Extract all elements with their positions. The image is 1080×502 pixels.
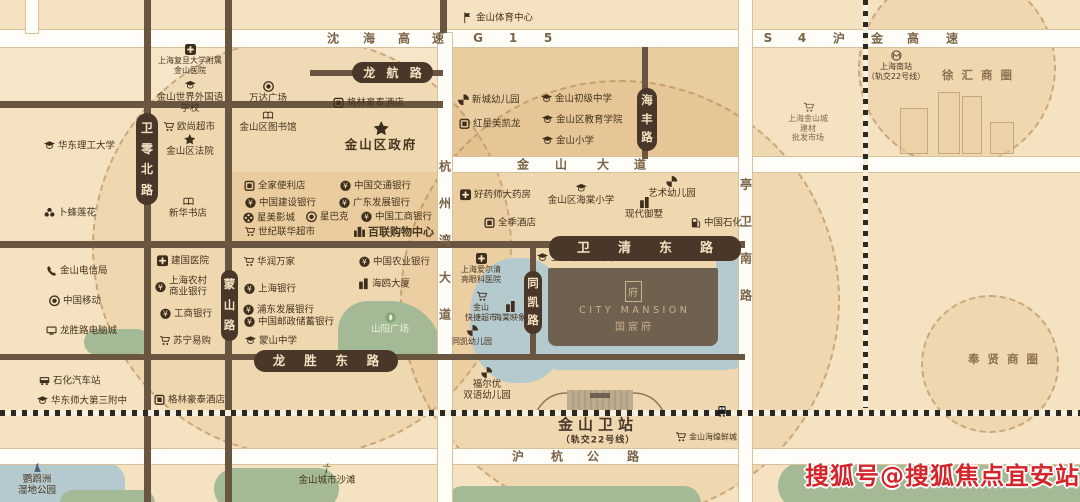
road-name-char: G xyxy=(473,31,483,45)
shop-icon xyxy=(484,217,495,228)
poi-label: 鹦鹉洲 xyxy=(18,474,56,485)
cross-icon xyxy=(185,44,196,55)
road-name-char: 沪 xyxy=(833,30,845,47)
poi-shanghai-south-station: 上海南站（轨交22号线） xyxy=(867,50,925,81)
road-pill-卫清东路: 卫清东路 xyxy=(549,236,741,261)
poi-china-mobile: 中国移动 xyxy=(49,295,101,306)
book-icon xyxy=(262,110,273,121)
towers-icon xyxy=(354,227,365,238)
poi-label: 金山区海棠小学 xyxy=(548,195,615,206)
poi-label: 华东理工大学 xyxy=(58,140,115,151)
skyline-building-sketch xyxy=(938,92,960,154)
cart-icon xyxy=(476,291,487,302)
project-emblem-icon: 府 xyxy=(625,281,642,302)
poi-art-kindergarten: 艺术幼儿园 xyxy=(648,176,696,199)
poi-label: （轨交22号线） xyxy=(867,72,925,82)
poi-label: 百联购物中心 xyxy=(368,225,434,238)
poi-label: 红星美凯龙 xyxy=(473,118,521,129)
cart-icon xyxy=(243,256,254,267)
bank-icon: ¥ xyxy=(339,197,350,208)
svg-text:¥: ¥ xyxy=(163,310,168,319)
school-icon xyxy=(542,114,553,125)
road-name-char: 道 xyxy=(439,306,451,323)
station-name: 金山卫站 xyxy=(558,414,638,435)
poi-label: 湿地公园 xyxy=(18,485,56,496)
svg-text:¥: ¥ xyxy=(342,199,347,208)
poi-label: 新华书店 xyxy=(169,208,207,219)
bank-icon: ¥ xyxy=(160,308,171,319)
road-name-char: 大 xyxy=(439,269,451,286)
poi-jinshan-junior-middle-school: 金山初级中学 xyxy=(541,93,612,104)
film-icon xyxy=(243,212,254,223)
poi-tongkai-kindergarten: 同凯幼儿园 xyxy=(452,325,492,347)
poi-label: 中国交通银行 xyxy=(354,180,411,191)
poi-label: 同凯幼儿园 xyxy=(452,337,492,347)
poi-lotus-supermarket: 卜蜂莲花 xyxy=(44,207,96,218)
poi-parrot-wetland-park: 鹦鹉洲湿地公园 xyxy=(18,462,56,497)
poi-jinshan-telecom: 金山电信局 xyxy=(46,265,108,276)
road-name-char: 道 xyxy=(634,156,646,173)
poi-longsheng-computer-city: 龙胜路电脑城 xyxy=(46,325,117,336)
poi-label: 卜蜂莲花 xyxy=(58,207,96,218)
road-pill-海丰路: 海丰路 xyxy=(637,88,657,151)
poi-label: 蒙山中学 xyxy=(259,335,297,346)
pc-icon xyxy=(46,325,57,336)
road-name-char: 南 xyxy=(740,250,752,267)
poi-label: 星巴克 xyxy=(320,211,349,222)
bus-icon xyxy=(39,375,50,386)
cart-icon xyxy=(244,226,255,237)
road-name-char: 公 xyxy=(587,448,599,465)
poi-label: 金山城市沙滩 xyxy=(298,475,355,486)
poi-label: 福尔优 xyxy=(463,379,511,390)
poi-label: 金山区图书馆 xyxy=(239,122,296,133)
poi-stellar-cinema: 星美影城 xyxy=(243,212,295,223)
poi-label: 华润万家 xyxy=(257,256,295,267)
poi-jinshan-government: 金山区政府 xyxy=(345,121,418,152)
poi-spd-bank: ¥浦东发展银行 xyxy=(243,304,314,315)
flower-icon xyxy=(44,207,55,218)
poi-label: 海鸥大厦 xyxy=(372,278,410,289)
poi-label: 金山区教育学院 xyxy=(556,114,623,125)
poi-label: 建国医院 xyxy=(171,255,209,266)
poi-haoyaoshi-pharmacy: 好药师大药房 xyxy=(460,189,531,200)
school-icon xyxy=(537,252,548,263)
road-pill-同凯路: 同凯路 xyxy=(524,271,542,334)
flag-icon xyxy=(462,12,473,23)
poi-label: 上海农村 xyxy=(169,276,207,287)
poi-label: 全季酒店 xyxy=(498,217,536,228)
poi-label: 中国建设银行 xyxy=(259,197,316,208)
poi-ccb-bank: ¥中国建设银行 xyxy=(245,197,316,208)
school-icon xyxy=(542,135,553,146)
poi-label: 华东师大第三附中 xyxy=(51,395,127,406)
bank-icon: ¥ xyxy=(359,256,370,267)
poi-sinopec: 中国石化 xyxy=(690,217,742,228)
poi-label: 金山小学 xyxy=(556,135,594,146)
star-icon xyxy=(373,121,388,136)
shop-icon xyxy=(244,180,255,191)
road-pill-蒙山路: 蒙山路 xyxy=(221,270,238,341)
poi-label: 金山电信局 xyxy=(60,265,108,276)
poi-label: 金山世界外国语 xyxy=(157,92,224,103)
skyline-building-sketch xyxy=(900,108,928,154)
school-icon xyxy=(37,395,48,406)
poi-lianhua-supermarket: 世纪联华超市 xyxy=(244,226,315,237)
poi-label: 全家便利店 xyxy=(258,180,306,191)
project-name-cn: 国宸府 xyxy=(612,318,654,333)
poi-wanda-plaza: 万达广场 xyxy=(249,81,287,104)
poi-bank-of-shanghai: ¥上海银行 xyxy=(244,283,296,294)
railway xyxy=(0,410,1080,416)
phone-icon xyxy=(46,265,57,276)
shop-icon xyxy=(333,97,344,108)
road-name-char: 大 xyxy=(597,156,609,173)
svg-text:¥: ¥ xyxy=(246,306,251,315)
school-icon xyxy=(44,140,55,151)
road-name-char: 金 xyxy=(871,30,883,47)
poi-jinshan-court: 金山区法院 xyxy=(166,134,214,157)
coffee-icon xyxy=(262,81,273,92)
svg-text:¥: ¥ xyxy=(247,285,252,294)
shop-icon xyxy=(154,394,165,405)
poi-label: 批发市场 xyxy=(788,133,828,143)
poi-fudan-jinshan-hospital: 上海复旦大学附属金山医院 xyxy=(158,44,222,75)
poi-label: 中国石化 xyxy=(704,217,742,228)
leaf-icon xyxy=(384,312,395,323)
poi-jinshan-city-beach: 金山城市沙滩 xyxy=(298,463,355,486)
building-icon xyxy=(358,278,369,289)
poi-label: 金山 xyxy=(465,303,497,313)
road-name-char: 金 xyxy=(517,156,529,173)
road-name-char: 1 xyxy=(509,31,517,45)
poi-icbc-bank: ¥中国工商银行 xyxy=(361,211,432,222)
poi-label: 中国移动 xyxy=(63,295,101,306)
poi-jiancai-market: 上海金山城建材批发市场 xyxy=(788,102,828,143)
sohu-watermark: 搜狐号@搜狐焦点宜安站 xyxy=(805,456,1080,491)
project-name-en: CITY MANSION xyxy=(576,305,691,316)
poi-icbc-west: ¥工商银行 xyxy=(160,308,212,319)
skyline-building-sketch xyxy=(990,122,1014,154)
road-name-char: S xyxy=(764,31,773,45)
building-icon xyxy=(505,301,516,312)
park-area xyxy=(446,486,701,502)
bank-icon: ¥ xyxy=(243,304,254,315)
poi-seagull-tower: 海鸥大厦 xyxy=(358,278,410,289)
poi-label: 格林豪泰酒店 xyxy=(168,394,225,405)
poi-label: 好药师大药房 xyxy=(474,189,531,200)
book-icon xyxy=(182,196,193,207)
cart-icon xyxy=(803,102,814,113)
poi-suning: 苏宁易购 xyxy=(159,335,211,346)
poi-label: 金山初级中学 xyxy=(555,93,612,104)
cart-icon xyxy=(163,121,174,132)
svg-text:¥: ¥ xyxy=(247,318,252,327)
palm-icon xyxy=(321,463,332,474)
cross-icon xyxy=(157,255,168,266)
road-name-char: 亭 xyxy=(740,176,752,193)
shop-icon xyxy=(459,118,470,129)
coffee-icon xyxy=(49,295,60,306)
road-name-char: 沈 xyxy=(327,30,339,47)
school-icon xyxy=(245,335,256,346)
road-name-char: 速 xyxy=(946,30,958,47)
cart-icon xyxy=(675,432,686,443)
poi-bailian-shopping-center: 百联购物中心 xyxy=(354,225,434,238)
poi-world-foreign-language-school: 金山世界外国语学校 xyxy=(157,80,224,115)
poi-label: 工商银行 xyxy=(174,308,212,319)
school-icon xyxy=(184,80,195,91)
road xyxy=(443,157,1080,172)
poi-label: 星美影城 xyxy=(257,212,295,223)
poi-label: 双语幼儿园 xyxy=(463,390,511,401)
road-pill-龙航路: 龙航路 xyxy=(352,62,433,83)
poi-greentree-hotel-north: 格林豪泰酒店 xyxy=(333,97,404,108)
poi-starbucks: 星巴克 xyxy=(306,211,349,222)
poi-haitang-primary-school: 金山区海棠小学 xyxy=(548,183,615,206)
poi-auchan-supermarket: 欧尚超市 xyxy=(163,121,215,132)
poi-label: 中国工商银行 xyxy=(375,211,432,222)
poi-train-marker xyxy=(717,406,728,417)
poi-jinshan-sports-center: 金山体育中心 xyxy=(462,12,533,23)
poi-mengshan-middle-school: 蒙山中学 xyxy=(245,335,297,346)
windmill-icon xyxy=(458,94,469,105)
district-label: 徐 汇 商 圈 xyxy=(942,67,1014,83)
road xyxy=(26,0,38,33)
poi-xincheng-kindergarten: 新城幼儿园 xyxy=(458,94,520,105)
bank-icon: ¥ xyxy=(244,316,255,327)
cart-icon xyxy=(159,335,170,346)
poi-label: 龙胜路电脑城 xyxy=(60,325,117,336)
poi-label: 金山区法院 xyxy=(166,146,214,157)
poi-label: 建材 xyxy=(788,124,828,134)
poi-label: 上海复旦大学附属 xyxy=(158,56,222,66)
svg-text:¥: ¥ xyxy=(158,283,163,292)
poi-bocom-bank: ¥中国交通银行 xyxy=(340,180,411,191)
bank-icon: ¥ xyxy=(245,197,256,208)
skyline-building-sketch xyxy=(962,96,982,154)
poi-label: 上海银行 xyxy=(258,283,296,294)
bird-icon xyxy=(31,462,42,473)
road-name-char: 路 xyxy=(627,448,639,465)
station-building-sketch xyxy=(535,381,665,413)
poi-label: 苏宁易购 xyxy=(173,335,211,346)
train-icon xyxy=(717,406,728,417)
poi-label: 亮眼科医院 xyxy=(461,275,501,285)
road xyxy=(440,0,447,33)
poi-label: 山阳广场 xyxy=(371,324,409,335)
poi-psbc-bank: ¥中国邮政储蓄银行 xyxy=(244,316,334,327)
poi-kuaijie-supermarket: 金山快捷超市 xyxy=(465,291,497,322)
district-label: 奉 贤 商 圈 xyxy=(968,351,1040,367)
windmill-icon xyxy=(467,325,478,336)
poi-jianguo-hospital: 建国医院 xyxy=(157,255,209,266)
road-name-char: 5 xyxy=(544,31,552,45)
road-pill-卫零北路: 卫零北路 xyxy=(136,113,158,205)
road-name-char: 高 xyxy=(907,30,919,47)
road-name-char: 沪 xyxy=(512,448,524,465)
poi-label: 中国邮政储蓄银行 xyxy=(258,316,334,327)
poi-xinhua-bookstore: 新华书店 xyxy=(169,196,207,219)
road-name-char: 4 xyxy=(798,31,806,45)
poi-label: 金山区政府 xyxy=(345,137,418,152)
road-name-char: 高 xyxy=(398,30,410,47)
road-name-char: 湾 xyxy=(439,232,451,249)
svg-text:¥: ¥ xyxy=(343,182,348,191)
poi-label: 欧尚超市 xyxy=(177,121,215,132)
poi-label: 广东发展银行 xyxy=(353,197,410,208)
poi-label: 上海南站 xyxy=(867,62,925,72)
poi-jinshan-library: 金山区图书馆 xyxy=(239,110,296,133)
windmill-icon xyxy=(481,367,492,378)
road-name-char: 海 xyxy=(363,30,375,47)
poi-hdsd-no3-middle-school: 华东师大第三附中 xyxy=(37,395,127,406)
svg-text:¥: ¥ xyxy=(248,199,253,208)
poi-ji-hotel: 全季酒店 xyxy=(484,217,536,228)
poi-rural-commercial-bank: ¥上海农村商业银行 xyxy=(155,276,207,299)
poi-redstar-macalline: 红星美凯龙 xyxy=(459,118,521,129)
poi-jinshan-primary-school: 金山小学 xyxy=(542,135,594,146)
bank-icon: ¥ xyxy=(155,282,166,293)
bank-icon: ¥ xyxy=(361,211,372,222)
road-name-char: 杭 xyxy=(439,158,451,175)
poi-jinshan-education-institute: 金山区教育学院 xyxy=(542,114,623,125)
poi-label: 现代御墅 xyxy=(625,209,663,220)
gas-icon xyxy=(690,217,701,228)
road-name-char: 速 xyxy=(432,30,444,47)
poi-label: 金山体育中心 xyxy=(476,12,533,23)
poi-label: 石化汽车站 xyxy=(53,375,101,386)
park-area xyxy=(60,490,155,502)
poi-label: 世纪联华超市 xyxy=(258,226,315,237)
cross-icon xyxy=(460,189,471,200)
windmill-icon xyxy=(666,176,677,187)
star-icon xyxy=(184,134,195,145)
poi-label: 中国农业银行 xyxy=(373,256,430,267)
poi-label: 金山海煌鲜城 xyxy=(689,432,737,442)
project-marker-city-mansion: 府 CITY MANSION 国宸府 xyxy=(548,268,718,346)
poi-family-mart: 全家便利店 xyxy=(244,180,306,191)
poi-modern-villa: 现代御墅 xyxy=(625,197,663,220)
station-line: （轨交22号线） xyxy=(561,433,636,446)
road-name-char: 杭 xyxy=(551,448,563,465)
jinshan-location-map: 府 CITY MANSION 国宸府 搜狐号@搜狐焦点宜安站 沈海高速G15S4… xyxy=(0,0,1080,502)
road-name-char: 卫 xyxy=(740,213,752,230)
school-icon xyxy=(541,93,552,104)
metro-icon xyxy=(891,50,902,61)
school-icon xyxy=(575,183,586,194)
poi-abc-bank: ¥中国农业银行 xyxy=(359,256,430,267)
building-icon xyxy=(638,197,649,208)
svg-text:¥: ¥ xyxy=(362,258,367,267)
poi-label: 学校 xyxy=(157,103,224,114)
road-name-char: 路 xyxy=(740,287,752,304)
road-name-char: 州 xyxy=(439,195,451,212)
road-pill-龙胜东路: 龙胜东路 xyxy=(254,350,398,372)
poi-label: 金山医院 xyxy=(158,66,222,76)
poi-shanyang-plaza: 山阳广场 xyxy=(371,312,409,335)
poi-greentree-hotel-south: 格林豪泰酒店 xyxy=(154,394,225,405)
road-name-char: 山 xyxy=(555,156,567,173)
poi-label: 商业银行 xyxy=(169,287,207,298)
poi-label: 上海金山城 xyxy=(788,114,828,124)
poi-label: 快捷超市 xyxy=(465,313,497,323)
poi-label: 浦东发展银行 xyxy=(257,304,314,315)
coffee-icon xyxy=(306,211,317,222)
poi-haihuang-market: 金山海煌鲜城 xyxy=(675,432,737,443)
cross-icon xyxy=(476,253,487,264)
poi-label: 新城幼儿园 xyxy=(472,94,520,105)
poi-shihua-bus-station: 石化汽车站 xyxy=(39,375,101,386)
poi-label: 上海爱尔清 xyxy=(461,265,501,275)
poi-vanguard: 华润万家 xyxy=(243,256,295,267)
poi-haitang-yingxiang: 海棠映象 xyxy=(494,301,526,323)
poi-label: 万达广场 xyxy=(249,93,287,104)
poi-ecust-university: 华东理工大学 xyxy=(44,140,115,151)
road xyxy=(225,0,232,502)
bank-icon: ¥ xyxy=(244,283,255,294)
poi-gdb-bank: ¥广东发展银行 xyxy=(339,197,410,208)
poi-aier-eye-hospital: 上海爱尔清亮眼科医院 xyxy=(461,253,501,284)
poi-label: 格林豪泰酒店 xyxy=(347,97,404,108)
svg-text:¥: ¥ xyxy=(364,213,369,222)
bank-icon: ¥ xyxy=(340,180,351,191)
poi-label: 海棠映象 xyxy=(494,313,526,323)
road xyxy=(144,0,151,502)
poi-fueryou-kindergarten: 福尔优双语幼儿园 xyxy=(463,367,511,402)
